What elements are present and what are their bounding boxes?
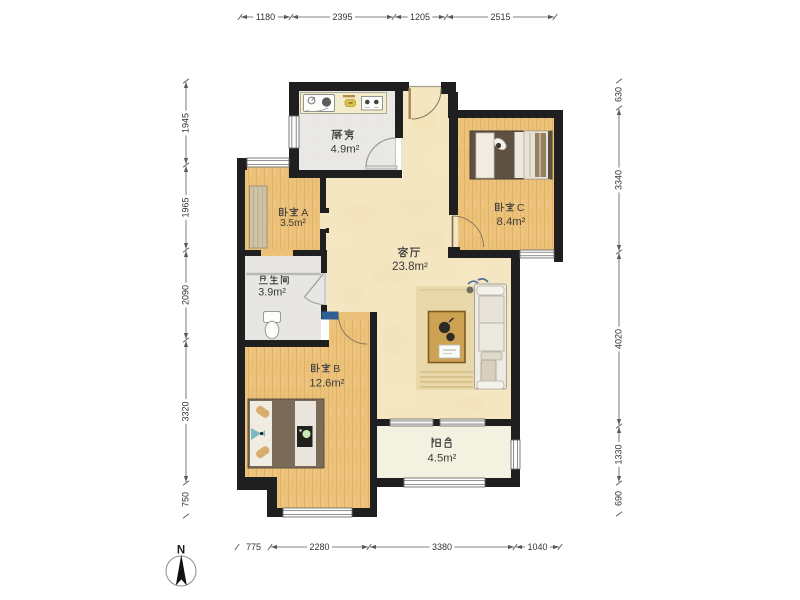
- svg-text:630: 630: [613, 87, 623, 102]
- svg-text:4.9m²: 4.9m²: [331, 144, 360, 156]
- svg-text:2090: 2090: [180, 285, 190, 305]
- svg-text:4020: 4020: [613, 329, 623, 349]
- svg-text:1330: 1330: [613, 444, 623, 464]
- svg-text:3.5m²: 3.5m²: [280, 218, 306, 229]
- svg-text:1040: 1040: [527, 542, 547, 552]
- svg-text:2280: 2280: [309, 542, 329, 552]
- svg-text:2515: 2515: [490, 12, 510, 22]
- svg-text:4.5m²: 4.5m²: [428, 453, 457, 465]
- svg-text:12.6m²: 12.6m²: [309, 378, 344, 390]
- svg-text:1180: 1180: [256, 12, 275, 22]
- svg-text:2395: 2395: [332, 12, 352, 22]
- svg-text:775: 775: [246, 542, 261, 552]
- svg-text:750: 750: [180, 492, 190, 507]
- svg-text:690: 690: [613, 491, 623, 506]
- svg-text:3.9m²: 3.9m²: [258, 287, 286, 299]
- svg-text:C: C: [517, 203, 525, 214]
- svg-text:B: B: [333, 364, 340, 375]
- svg-text:1945: 1945: [180, 113, 190, 133]
- svg-text:3380: 3380: [432, 542, 452, 552]
- svg-text:8.4m²: 8.4m²: [497, 216, 526, 228]
- svg-text:1205: 1205: [410, 12, 430, 22]
- svg-text:23.8m²: 23.8m²: [392, 261, 428, 273]
- svg-text:N: N: [177, 545, 185, 557]
- svg-text:3340: 3340: [613, 170, 623, 190]
- svg-text:3320: 3320: [180, 401, 190, 421]
- svg-text:1965: 1965: [180, 197, 190, 217]
